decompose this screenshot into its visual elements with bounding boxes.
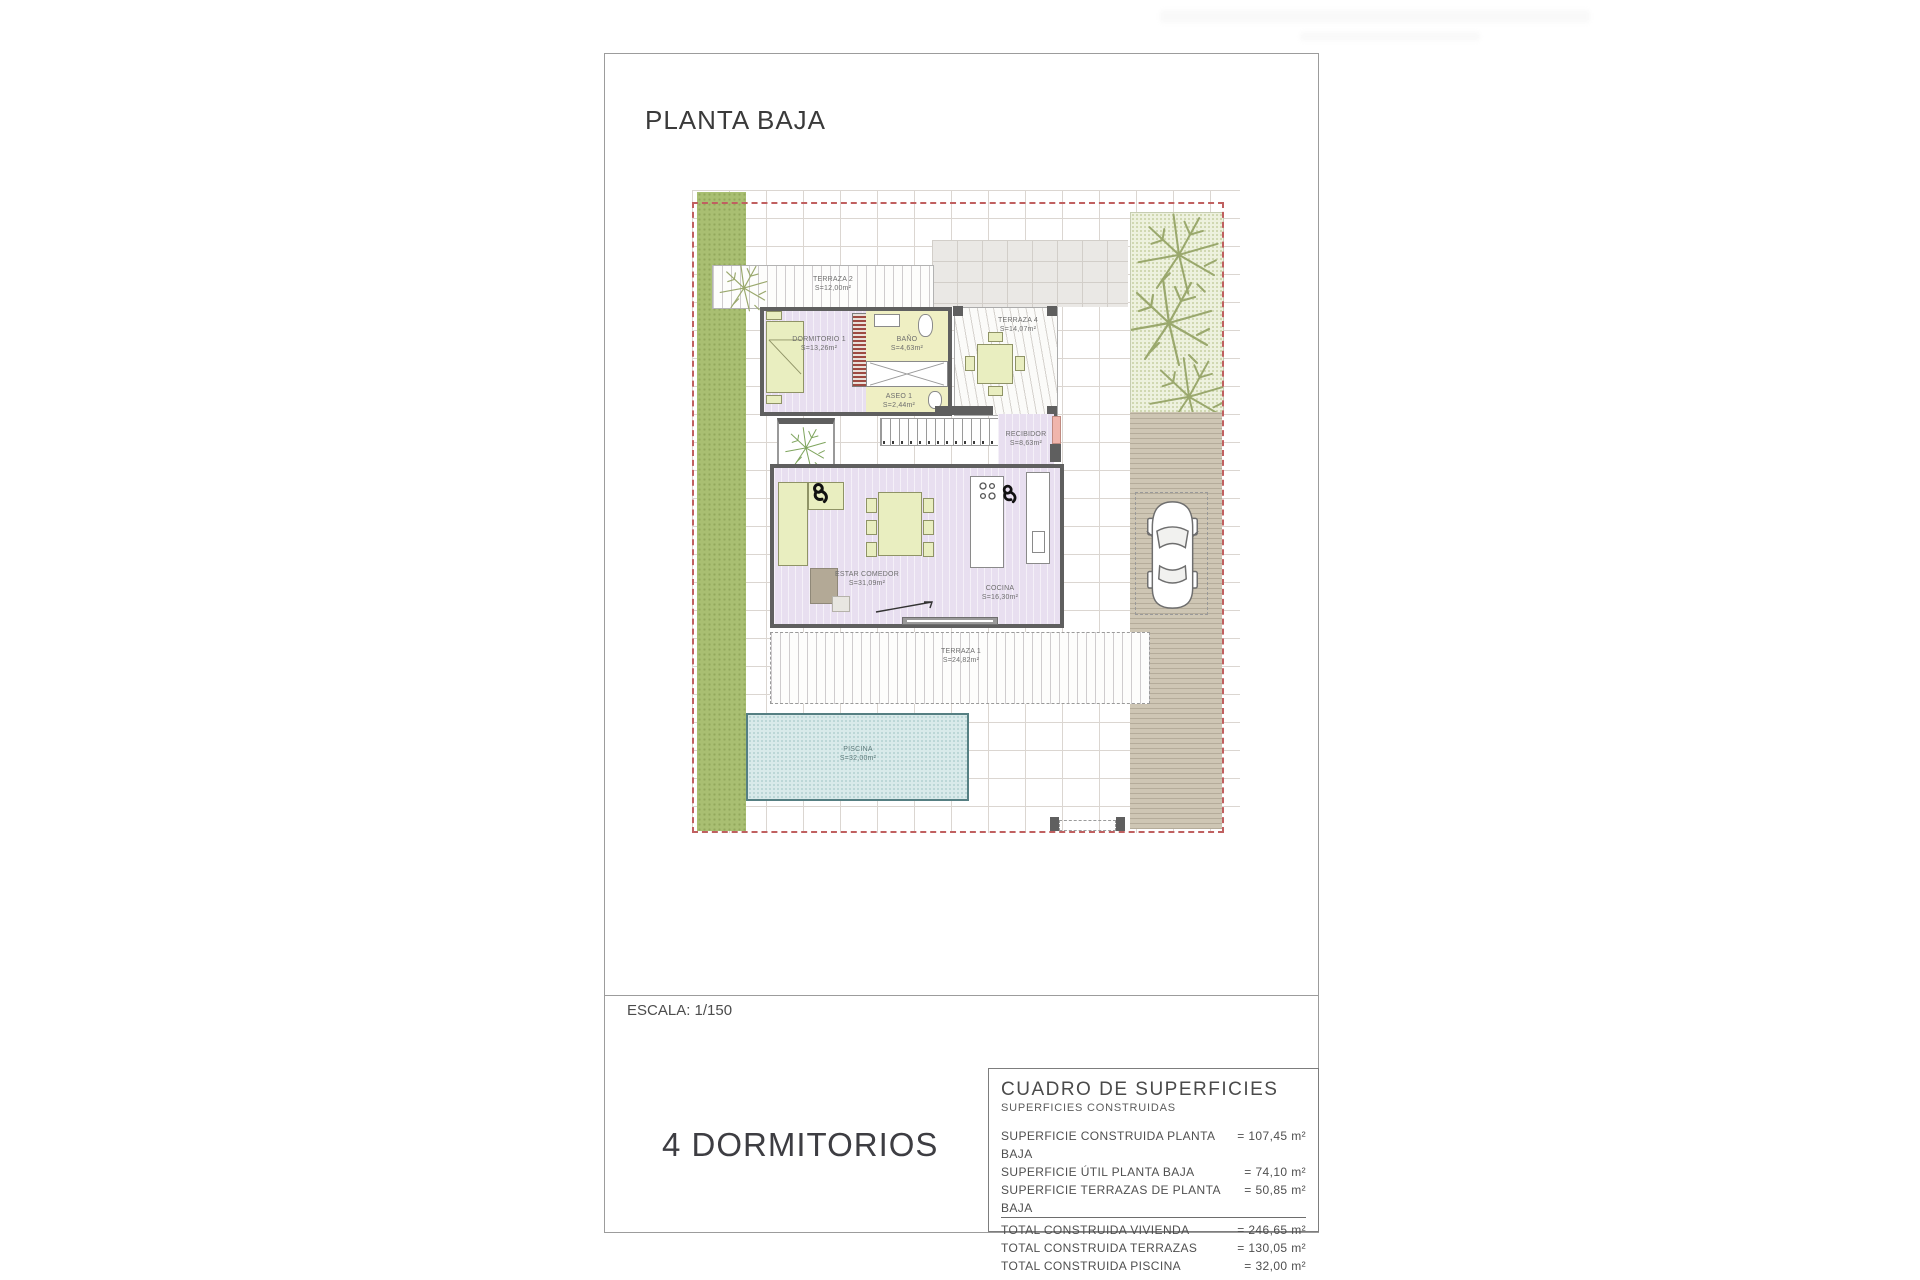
sink [874,314,900,327]
room-area: S=13,26m² [801,345,837,352]
wing-north: DORMITORIO 1 S=13,26m² BAÑO S=4,63m² ASE… [760,307,952,416]
wall-pillar [1047,306,1057,316]
door-swing-line [874,600,934,614]
room-area: S=31,09m² [849,580,885,587]
table-row: SUPERFICIE TERRAZAS DE PLANTA BAJA = 50,… [1001,1181,1306,1217]
sofa [778,482,808,566]
chair [965,356,975,371]
nightstand [766,311,782,320]
room-label-estar: ESTAR COMEDOR S=31,09m² [812,570,922,588]
person-icon [810,480,834,504]
room-area: S=8,63m² [1010,440,1042,447]
row-label: TOTAL CONSTRUIDA PISCINA [1001,1257,1181,1275]
room-label-recibidor: RECIBIDOR S=8,63m² [998,430,1054,448]
site-plan: TERRAZA 2 S=12,00m² DORMITORIO 1 S=13,26… [692,190,1240,833]
kitchen-counter [1026,472,1050,564]
wall-segment [935,406,993,415]
room-terraza1: TERRAZA 1 S=24,82m² [770,632,1150,704]
plan-sheet-page: { "page": { "title": "PLANTA BAJA", "sca… [0,0,1920,1280]
row-label: TOTAL CONSTRUIDA VIVIENDA [1001,1221,1189,1239]
kitchen-sink [1032,531,1045,553]
toilet [918,314,933,337]
table-row: TOTAL CONSTRUIDA PISCINA = 32,00 m² [1001,1257,1306,1275]
room-name: BAÑO [897,336,918,343]
chair [923,520,934,535]
chair [866,542,877,557]
chair [923,498,934,513]
table-row: TOTAL CONSTRUIDA TERRAZAS = 130,05 m² [1001,1239,1306,1257]
room-label-bano: BAÑO S=4,63m² [876,335,938,353]
table-row: TOTAL CONSTRUIDA VIVIENDA = 246,65 m² [1001,1221,1306,1239]
chair [866,498,877,513]
room-area: S=14,07m² [1000,326,1036,333]
row-value: = 32,00 m² [1244,1257,1306,1275]
row-label: TOTAL CONSTRUIDA TERRAZAS [1001,1239,1197,1257]
shower [866,361,948,387]
row-label: SUPERFICIE CONSTRUIDA PLANTA BAJA [1001,1127,1237,1163]
faint-watermark-smudge [1300,32,1480,41]
bedrooms-label: 4 DORMITORIOS [662,1126,938,1164]
room-name: DORMITORIO 1 [792,336,846,343]
room-recibidor: RECIBIDOR S=8,63m² [998,414,1054,464]
paved-patio-north [932,240,1128,307]
row-label: SUPERFICIE TERRAZAS DE PLANTA BAJA [1001,1181,1244,1217]
person-icon [1000,482,1022,504]
row-value: = 246,65 m² [1237,1221,1306,1239]
room-bano: BAÑO S=4,63m² [866,311,948,361]
room-label-cocina: COCINA S=16,30m² [960,584,1040,602]
entrance-door [1052,416,1061,444]
room-name: RECIBIDOR [1006,431,1047,438]
chair [866,520,877,535]
shower-cross-lines [867,362,947,386]
stairs [880,418,1000,446]
tree-icon [717,260,771,314]
row-value: = 74,10 m² [1244,1163,1306,1181]
chair [988,332,1003,342]
surfaces-table-title: CUADRO DE SUPERFICIES [1001,1079,1306,1101]
room-terraza2: TERRAZA 2 S=12,00m² [712,265,934,309]
page-title: PLANTA BAJA [645,105,826,136]
surfaces-table-subtitle: SUPERFICIES CONSTRUIDAS [1001,1102,1306,1114]
room-area: S=12,00m² [815,285,851,292]
table-row: SUPERFICIE CONSTRUIDA PLANTA BAJA = 107,… [1001,1127,1306,1163]
gate-pillar [1050,817,1059,831]
stair-treads [883,441,997,444]
sliding-door-track [907,620,993,622]
cooktop-icon [977,480,997,504]
room-area: S=16,30m² [982,594,1018,601]
room-label-terraza2: TERRAZA 2 S=12,00m² [783,275,883,293]
outdoor-table [977,344,1013,384]
gate-outline [1059,820,1116,831]
gate-pillar [1116,817,1125,831]
wall-pillar [1050,444,1061,462]
room-area: S=24,82m² [943,657,979,664]
room-name: PISCINA [843,746,872,753]
faint-watermark-smudge [1160,10,1590,23]
wall-pillar [953,306,963,316]
room-area: S=4,63m² [891,345,923,352]
row-value: = 107,45 m² [1237,1127,1306,1163]
room-name: COCINA [986,585,1014,592]
room-area: S=32,00m² [840,755,876,762]
room-terraza4: TERRAZA 4 S=14,07m² [954,307,1058,416]
surfaces-rows: SUPERFICIE CONSTRUIDA PLANTA BAJA = 107,… [1001,1127,1306,1217]
room-name: TERRAZA 2 [813,276,853,283]
table-row: SUPERFICIE ÚTIL PLANTA BAJA = 74,10 m² [1001,1163,1306,1181]
room-name: ASEO 1 [886,393,913,400]
nightstand [766,395,782,404]
room-living: ESTAR COMEDOR S=31,09m² COCINA S=16,30m² [770,464,1064,628]
row-label: SUPERFICIE ÚTIL PLANTA BAJA [1001,1163,1195,1181]
room-name: TERRAZA 1 [941,648,981,655]
room-label-aseo1: ASEO 1 S=2,44m² [870,392,928,410]
row-value: = 50,85 m² [1244,1181,1306,1217]
scale-label: ESCALA: 1/150 [627,1002,732,1019]
room-area: S=2,44m² [883,402,915,409]
surfaces-totals: TOTAL CONSTRUIDA VIVIENDA = 246,65 m² TO… [1001,1217,1306,1279]
side-table [832,596,850,612]
bed [766,321,804,393]
kitchen-island [970,476,1004,568]
row-value: = 130,05 m² [1237,1239,1306,1257]
room-label-piscina: PISCINA S=32,00m² [808,745,908,763]
pool: PISCINA S=32,00m² [746,713,969,801]
chair [988,386,1003,396]
chair [1015,356,1025,371]
surfaces-table: CUADRO DE SUPERFICIES SUPERFICIES CONSTR… [988,1068,1319,1232]
room-name: TERRAZA 4 [998,317,1038,324]
room-label-terraza1: TERRAZA 1 S=24,82m² [891,647,1031,665]
room-label-dormitorio1: DORMITORIO 1 S=13,26m² [780,335,858,353]
chair [923,542,934,557]
dining-table [878,492,922,556]
sliding-door [902,617,998,625]
room-name: ESTAR COMEDOR [835,571,899,578]
bed-fold-line [767,322,803,392]
